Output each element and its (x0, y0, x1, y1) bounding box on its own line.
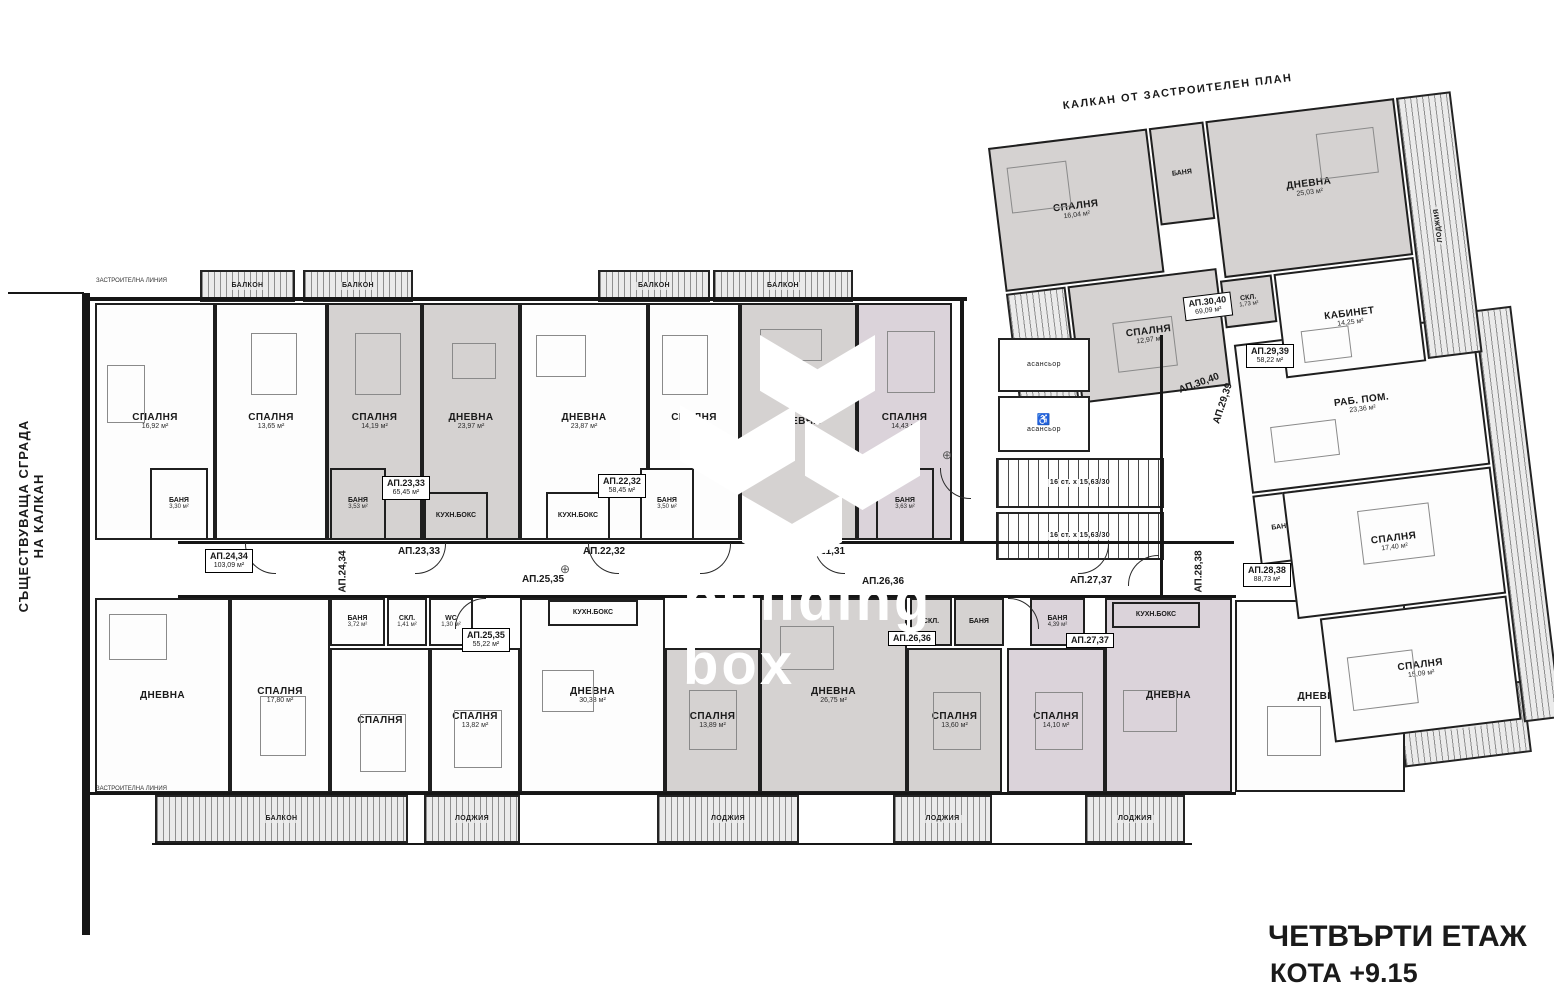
room-bedroom: СПАЛНЯ17,40 м² (1282, 467, 1506, 620)
apartment-area-box: АП.24,34 103,09 м² (205, 549, 253, 573)
elevator-label: асансьор (1027, 361, 1061, 369)
room-area: 16,92 м² (142, 423, 169, 431)
room-label: КУХН.БОКС (558, 512, 598, 520)
room-label: БАНЯ (348, 497, 368, 505)
room-area: 3,63 м² (895, 504, 914, 511)
balcony-label: БАЛКОН (765, 282, 801, 290)
furniture-outline (1112, 316, 1178, 373)
room-bedroom: СПАЛНЯ13,60 м² (907, 648, 1002, 793)
existing-building-label: СЪЩЕСТВУВАЩА СГРАДА НА КАЛКАН (16, 384, 46, 648)
furniture-outline (1316, 127, 1379, 180)
floor-plan-page: БАЛКОН БАЛКОН БАЛКОН БАЛКОН СПАЛНЯ16,92 … (0, 0, 1554, 1000)
elevator-cabin: асансьор (998, 338, 1090, 392)
apartment-tag: АП.23,33 (387, 478, 425, 488)
loggia: ЛОДЖИЯ (893, 795, 992, 843)
room-label: ДНЕВНА (140, 690, 185, 701)
room-label: БАНЯ (895, 497, 915, 505)
furniture-outline (689, 690, 737, 750)
room-label: ДНЕВНА (811, 686, 856, 697)
building-line-note: ЗАСТРОИТЕЛНА ЛИНИЯ (96, 786, 167, 792)
loggia-label: ЛОДЖИЯ (923, 815, 961, 823)
apartment-area: 103,09 м² (210, 562, 248, 571)
balcony-label: БАЛКОН (230, 282, 266, 290)
room-label: БАНЯ (1048, 615, 1068, 623)
room-area: 3,30 м² (169, 504, 188, 511)
apartment-area: 55,22 м² (467, 641, 505, 650)
wheelchair-icon: ♿ (1037, 414, 1051, 426)
furniture-outline (355, 333, 401, 395)
apartment-area-box: АП.22,32 58,45 м² (598, 474, 646, 498)
apartment-area-box: АП.25,35 55,22 м² (462, 628, 510, 652)
room-area: 3,50 м² (657, 504, 676, 511)
outer-wall-bottom (88, 792, 1236, 795)
room-area: 3,53 м² (348, 504, 367, 511)
top-boundary-label: КАЛКАН ОТ ЗАСТРОИТЕЛЕН ПЛАН (1062, 72, 1293, 112)
room-bedroom: СПАЛНЯ13,65 м² (215, 303, 327, 540)
furniture-outline (109, 614, 167, 660)
room-area: 1,73 м² (1239, 300, 1259, 310)
room-area: 4,39 м² (1048, 622, 1067, 629)
room-living: ДНЕВНА25,03 м² (1205, 98, 1413, 278)
room-label: БАНЯ (657, 497, 677, 505)
room-living: ДНЕВНА (95, 598, 230, 793)
room-area: 23,87 м² (571, 423, 598, 431)
door-arc (1078, 543, 1109, 574)
apartment-tag: АП.25,35 (467, 630, 505, 640)
room-bath: БАНЯ (954, 598, 1004, 646)
boundary-line-top (8, 292, 84, 294)
existing-building-line2: НА КАЛКАН (31, 384, 46, 648)
furniture-outline (1347, 649, 1419, 711)
balcony-label: БАЛКОН (264, 815, 300, 823)
room-label: КУХН.БОКС (1136, 611, 1176, 619)
apartment-tag: АП.25,35 (522, 574, 564, 585)
loggia: ЛОДЖИЯ (1085, 795, 1185, 843)
apartment-area-box: АП.29,39 58,22 м² (1246, 344, 1294, 368)
furniture-outline (542, 670, 594, 712)
apartment-tag: АП.29,39 (1211, 382, 1234, 425)
room-bedroom: СПАЛНЯ15,09 м² (1320, 596, 1522, 743)
furniture-outline (887, 331, 935, 393)
loggia: ЛОДЖИЯ (424, 795, 520, 843)
apartment-tag: АП.22,32 (583, 546, 625, 557)
room-storage: СКЛ.1,41 м² (387, 598, 427, 646)
apartment-tag: АП.24,34 (338, 550, 349, 592)
room-label: КУХН.БОКС (573, 609, 613, 617)
room-label: СПАЛНЯ (882, 412, 928, 423)
elevator-label: асансьор (1027, 426, 1061, 434)
core-wall-right (1160, 335, 1163, 595)
furniture-outline (662, 335, 708, 395)
apartment-area: 65,45 м² (387, 489, 425, 498)
room-area: 25,03 м² (1296, 188, 1323, 200)
apartment-area: 58,45 м² (603, 487, 641, 496)
loggia-label: ЛОДЖИЯ (453, 815, 491, 823)
building-line-note: ЗАСТРОИТЕЛНА ЛИНИЯ (96, 278, 167, 284)
apartment-tag: АП.28,38 (1194, 550, 1205, 592)
watermark-text: building (683, 572, 933, 630)
apartment-tag: АП.28,38 (1248, 565, 1286, 575)
room-bedroom: СПАЛНЯ13,82 м² (430, 648, 520, 793)
upper-band-end-wall (960, 297, 964, 544)
room-bath: БАНЯ3,72 м² (330, 598, 385, 646)
elevator-cabin-accessible: ♿ асансьор (998, 396, 1090, 452)
dimension-mark-icon: ⊕ (942, 448, 952, 462)
room-kitchenette: КУХН.БОКС (1112, 602, 1200, 628)
room-label: БАНЯ (1172, 169, 1193, 179)
stair-flight-up: 16 ст. х 15,63/30 (996, 458, 1164, 508)
loggia-label: ЛОДЖИЯ (1116, 815, 1154, 823)
room-bedroom: СПАЛНЯ (330, 648, 430, 793)
room-area: 3,72 м² (348, 622, 367, 629)
apartment-tag: АП.23,33 (398, 546, 440, 557)
room-area: 26,75 м² (820, 697, 847, 705)
balcony-edge-bottom (152, 843, 1192, 845)
room-area: 14,19 м² (361, 423, 388, 431)
furniture-outline (536, 335, 586, 377)
apartment-area-box: АП.23,33 65,45 м² (382, 476, 430, 500)
furniture-outline (1035, 692, 1083, 750)
apartment-tag: АП.24,34 (210, 551, 248, 561)
furniture-outline (107, 365, 145, 423)
floor-elevation: КОТА +9.15 (1270, 958, 1418, 989)
room-label: СПАЛНЯ (352, 412, 398, 423)
furniture-outline (251, 333, 297, 395)
room-bedroom: СПАЛНЯ17,80 м² (230, 598, 330, 793)
outer-wall-top (90, 297, 967, 301)
loggia-label: ЛОДЖИЯ (1433, 206, 1445, 245)
room-label: БАНЯ (969, 618, 989, 626)
furniture-outline (454, 710, 502, 768)
watermark-text: box (683, 636, 795, 694)
room-label: СПАЛНЯ (248, 412, 294, 423)
room-kitchenette: КУХН.БОКС (548, 600, 638, 626)
apartment-area: 58,22 м² (1251, 357, 1289, 366)
existing-building-line1: СЪЩЕСТВУВАЩА СГРАДА (16, 384, 31, 648)
furniture-outline (260, 696, 306, 756)
room-bath: БАНЯ (1149, 122, 1216, 226)
furniture-outline (1270, 419, 1340, 463)
stair-label: 16 ст. х 15,63/30 (1048, 479, 1112, 487)
apartment-tag: АП.22,32 (603, 476, 641, 486)
furniture-outline (1123, 690, 1177, 732)
apartment-tag: АП.27,37 (1070, 575, 1112, 586)
room-label: БАНЯ (348, 615, 368, 623)
furniture-outline (1301, 325, 1353, 363)
room-bedroom: СПАЛНЯ16,04 м² (988, 129, 1164, 292)
balcony-label: БАЛКОН (340, 282, 376, 290)
furniture-outline (1007, 161, 1072, 214)
apartment-area-box: АП.27,37 (1066, 633, 1114, 648)
room-kitchenette: КУХН.БОКС (546, 492, 610, 540)
apartment-area: 88,73 м² (1248, 576, 1286, 585)
room-bath: БАНЯ3,50 м² (640, 468, 694, 540)
furniture-outline (452, 343, 496, 379)
room-area: 23,97 м² (458, 423, 485, 431)
furniture-outline (1357, 502, 1435, 564)
room-area: 23,36 м² (1349, 404, 1376, 416)
floor-title: ЧЕТВЪРТИ ЕТАЖ (1268, 920, 1527, 954)
balcony-label: БАЛКОН (636, 282, 672, 290)
room-label: СКЛ. (399, 615, 415, 623)
apartment-area-box: АП.28,38 88,73 м² (1243, 563, 1291, 587)
room-label: БАНЯ (169, 497, 189, 505)
room-area: 1,41 м² (397, 622, 416, 629)
furniture-outline (933, 692, 981, 750)
apartment-tag: АП.26,36 (893, 633, 931, 643)
existing-building-wall (82, 293, 90, 935)
room-bath: БАНЯ3,30 м² (150, 468, 208, 540)
apartment-tag: АП.29,39 (1251, 346, 1289, 356)
room-bath: БАНЯ3,53 м² (330, 468, 386, 540)
furniture-outline (360, 714, 406, 772)
balcony: БАЛКОН (155, 795, 408, 843)
room-label: КУХН.БОКС (436, 512, 476, 520)
apartment-tag: АП.27,37 (1071, 635, 1109, 645)
loggia: ЛОДЖИЯ (657, 795, 799, 843)
room-label: ДНЕВНА (561, 412, 606, 423)
stair-label: 16 ст. х 15,63/30 (1048, 532, 1112, 540)
loggia-label: ЛОДЖИЯ (709, 815, 747, 823)
apartment-area-box: АП.26,36 (888, 631, 936, 646)
room-area: 16,04 м² (1063, 210, 1090, 222)
room-bedroom: СПАЛНЯ14,10 м² (1007, 648, 1105, 793)
room-kitchenette: КУХН.БОКС (424, 492, 488, 540)
room-area: 13,65 м² (258, 423, 285, 431)
room-office: КАБИНЕТ14,25 м² (1274, 257, 1427, 378)
room-label: ДНЕВНА (448, 412, 493, 423)
room-living: ДНЕВНА30,38 м² (520, 598, 665, 793)
